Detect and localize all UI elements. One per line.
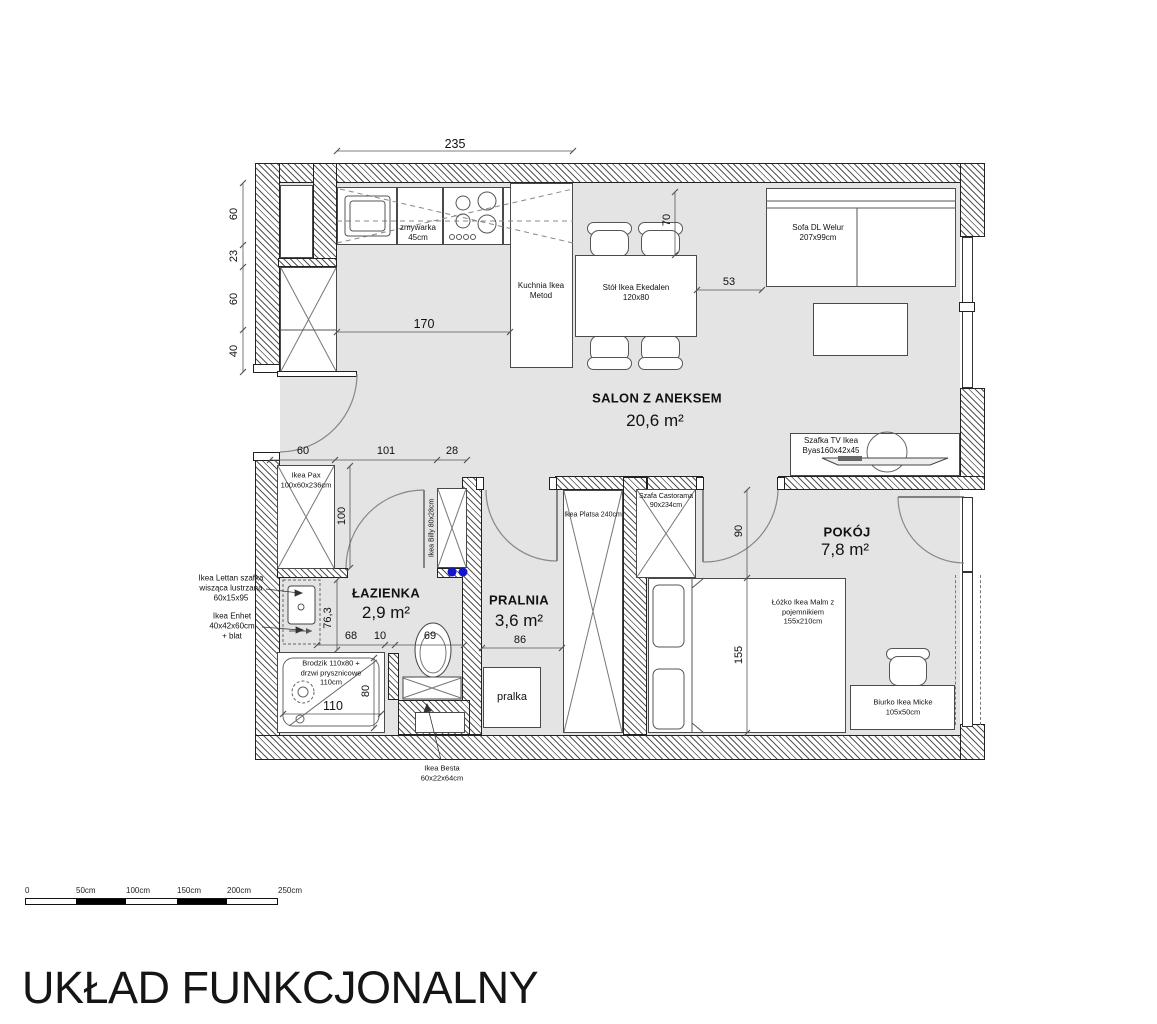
lozko-label: Łóżko Ikea Malm zpojemnikiem155x210cm <box>772 598 835 627</box>
lettan-label: Ikea Lettan szafkawisząca lustrzana60x15… <box>199 574 264 605</box>
dim-left-60a: 60 <box>227 208 241 220</box>
salon-window-sill <box>959 302 975 312</box>
besta-label: Ikea Besta60x22x64cm <box>421 763 464 782</box>
biurko-label: Biurko Ikea Micke105x50cm <box>873 697 932 716</box>
scale-label-250: 250cm <box>278 886 302 895</box>
dim-hall-28: 28 <box>446 444 458 458</box>
pralka-label: pralka <box>497 690 527 704</box>
dim-bath-68: 68 <box>345 629 357 643</box>
dim-left-40: 40 <box>227 345 241 357</box>
desk-chair-seat <box>889 656 927 686</box>
zmywarka-label: zmywarka45cm <box>400 223 436 243</box>
lazienka-area: 2,9 m² <box>362 602 410 624</box>
fridge-cabinet <box>280 185 313 258</box>
pralnia-door-jamb-l <box>476 477 484 490</box>
brodzik-label: Brodzik 110x80 +drzwi prysznicowe110cm <box>301 659 362 688</box>
dim-bath-side: 76,3 <box>321 607 335 628</box>
scale-label-0: 0 <box>25 886 29 895</box>
dim-pokoj-door: 90 <box>732 525 746 537</box>
sheet-title: UKŁAD FUNKCJONALNY <box>22 962 538 1014</box>
wall-shower-stub <box>388 653 399 700</box>
wall-mid-c <box>778 476 985 490</box>
tv-label: Szafka TV IkeaByas160x42x45 <box>803 436 860 456</box>
pokoj-window <box>962 497 973 572</box>
dining-chair-back <box>638 357 683 370</box>
dining-chair-seat <box>641 230 680 257</box>
floor-plan-sheet: SALON Z ANEKSEM 20,6 m² ŁAZIENKA 2,9 m² … <box>0 0 1157 1024</box>
scale-label-150: 150cm <box>177 886 201 895</box>
wall-right-top <box>960 163 985 237</box>
wall-right-bottom <box>960 724 985 760</box>
wall-left-upper <box>255 163 280 372</box>
dining-chair-seat <box>590 230 629 257</box>
coffee-table <box>813 303 908 356</box>
pokoj-area: 7,8 m² <box>821 539 869 561</box>
entry-door-leaf <box>277 371 357 377</box>
dim-kitchen-run: 170 <box>414 316 435 332</box>
scale-label-50: 50cm <box>76 886 96 895</box>
pokoj-door-jamb-l <box>696 477 704 490</box>
enhet-label: Ikea Enhet40x42x60cm+ blat <box>209 612 254 643</box>
stol-label: Stół Ikea Ekedalen120x80 <box>603 283 670 303</box>
dim-top: 235 <box>445 136 466 152</box>
platsa-label: Ikea Platsa 240cm <box>564 512 622 521</box>
dim-pax: 100 <box>335 507 349 525</box>
salon-name: SALON Z ANEKSEM <box>592 391 722 408</box>
wall-kitchen-stub <box>313 163 337 267</box>
wall-right-mid <box>960 388 985 477</box>
pralnia-door-jamb-r <box>549 477 557 490</box>
entry-wardrobe <box>280 267 337 372</box>
balcony-door-window <box>962 572 973 727</box>
kuchnia-metod-unit <box>510 183 573 368</box>
besta-cabinet <box>415 712 465 733</box>
dim-shower-w: 110 <box>323 698 343 714</box>
dim-bath-69: 69 <box>424 629 436 643</box>
entry-door-jamb-top <box>253 364 280 373</box>
dim-bed-w: 155 <box>732 646 746 664</box>
dim-left-23: 23 <box>227 250 241 262</box>
sofa-label: Sofa DL Welur207x99cm <box>792 223 844 243</box>
balcony-door-dashed-left <box>955 575 956 725</box>
dim-left-60b: 60 <box>227 293 241 305</box>
pokoj-door-jamb-r <box>777 477 785 490</box>
lazienka-name: ŁAZIENKA <box>352 586 420 603</box>
szafa-label: Szafa Castorama90x234cm <box>639 493 693 511</box>
scale-bar-black-1 <box>76 899 126 904</box>
dim-hall-101: 101 <box>377 444 395 458</box>
balcony-door-dashed-right <box>980 575 981 725</box>
dim-bath-10: 10 <box>374 629 386 643</box>
scale-label-100: 100cm <box>126 886 150 895</box>
wall-strip-under-fridge <box>278 258 337 267</box>
scale-bar-black-2 <box>177 899 227 904</box>
scale-label-200: 200cm <box>227 886 251 895</box>
kuchnia-metod-label: Kuchnia IkeaMetod <box>518 281 564 301</box>
dim-sofa-gap: 53 <box>723 275 735 289</box>
platsa-wardrobe <box>563 490 623 733</box>
wall-bottom <box>255 735 985 760</box>
salon-area: 20,6 m² <box>626 410 684 432</box>
pax-label: Ikea Pax100x60x236cm <box>281 470 332 489</box>
wall-top <box>255 163 985 183</box>
wall-hall-bath-left <box>277 568 348 578</box>
pralnia-name: PRALNIA <box>489 593 549 610</box>
dim-hall-60: 60 <box>297 444 309 458</box>
entry-door-jamb-bottom <box>253 452 280 461</box>
billy-shelf <box>437 488 467 568</box>
sink-cabinet <box>337 187 397 245</box>
scale-bar-rule <box>25 898 278 905</box>
billy-label: Ikea Billy 80x28cm <box>429 499 438 557</box>
dim-table-top: 70 <box>660 214 674 226</box>
pralnia-area: 3,6 m² <box>495 610 543 632</box>
wall-mid-b <box>647 476 703 490</box>
hob-cabinet <box>443 187 503 245</box>
dining-chair-back <box>587 357 632 370</box>
dim-shower-h: 80 <box>359 685 373 697</box>
salon-window <box>962 237 973 388</box>
dim-pralnia-w: 86 <box>514 633 526 647</box>
